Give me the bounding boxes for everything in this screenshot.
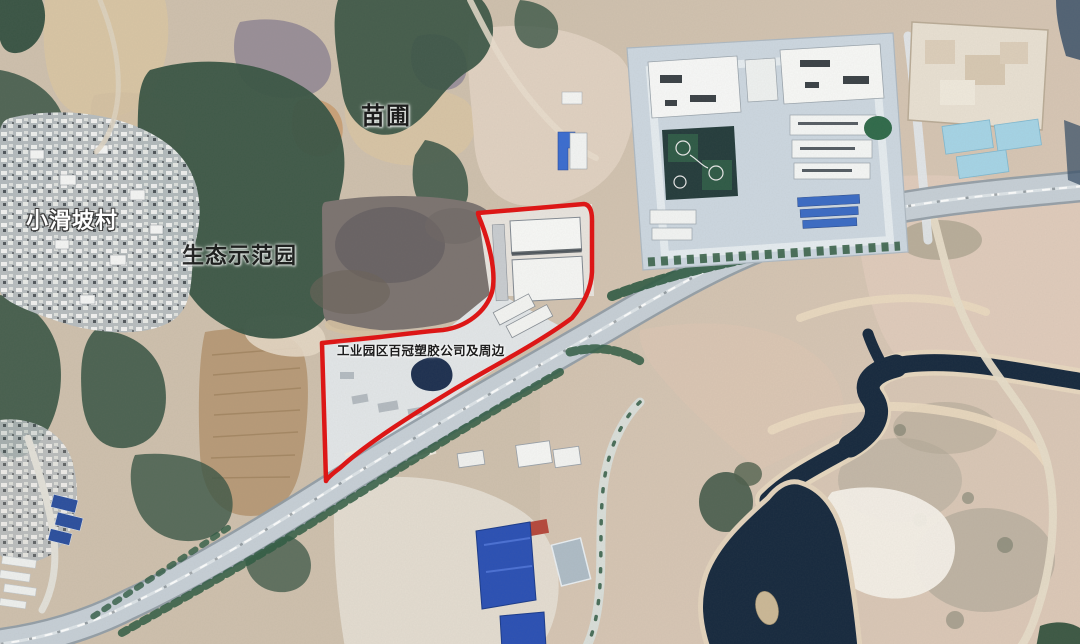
satellite-map-screenshot: 苗圃 小滑坡村 生态示范园 工业园区百冠塑胶公司及周边 [0, 0, 1080, 644]
satellite-texture [0, 0, 1080, 644]
map-label-eco-park: 生态示范园 [182, 245, 297, 267]
satellite-map [0, 0, 1080, 644]
map-label-boundary-area: 工业园区百冠塑胶公司及周边 [337, 345, 505, 358]
map-label-nursery: 苗圃 [361, 105, 411, 129]
map-label-village: 小滑坡村 [26, 210, 118, 232]
